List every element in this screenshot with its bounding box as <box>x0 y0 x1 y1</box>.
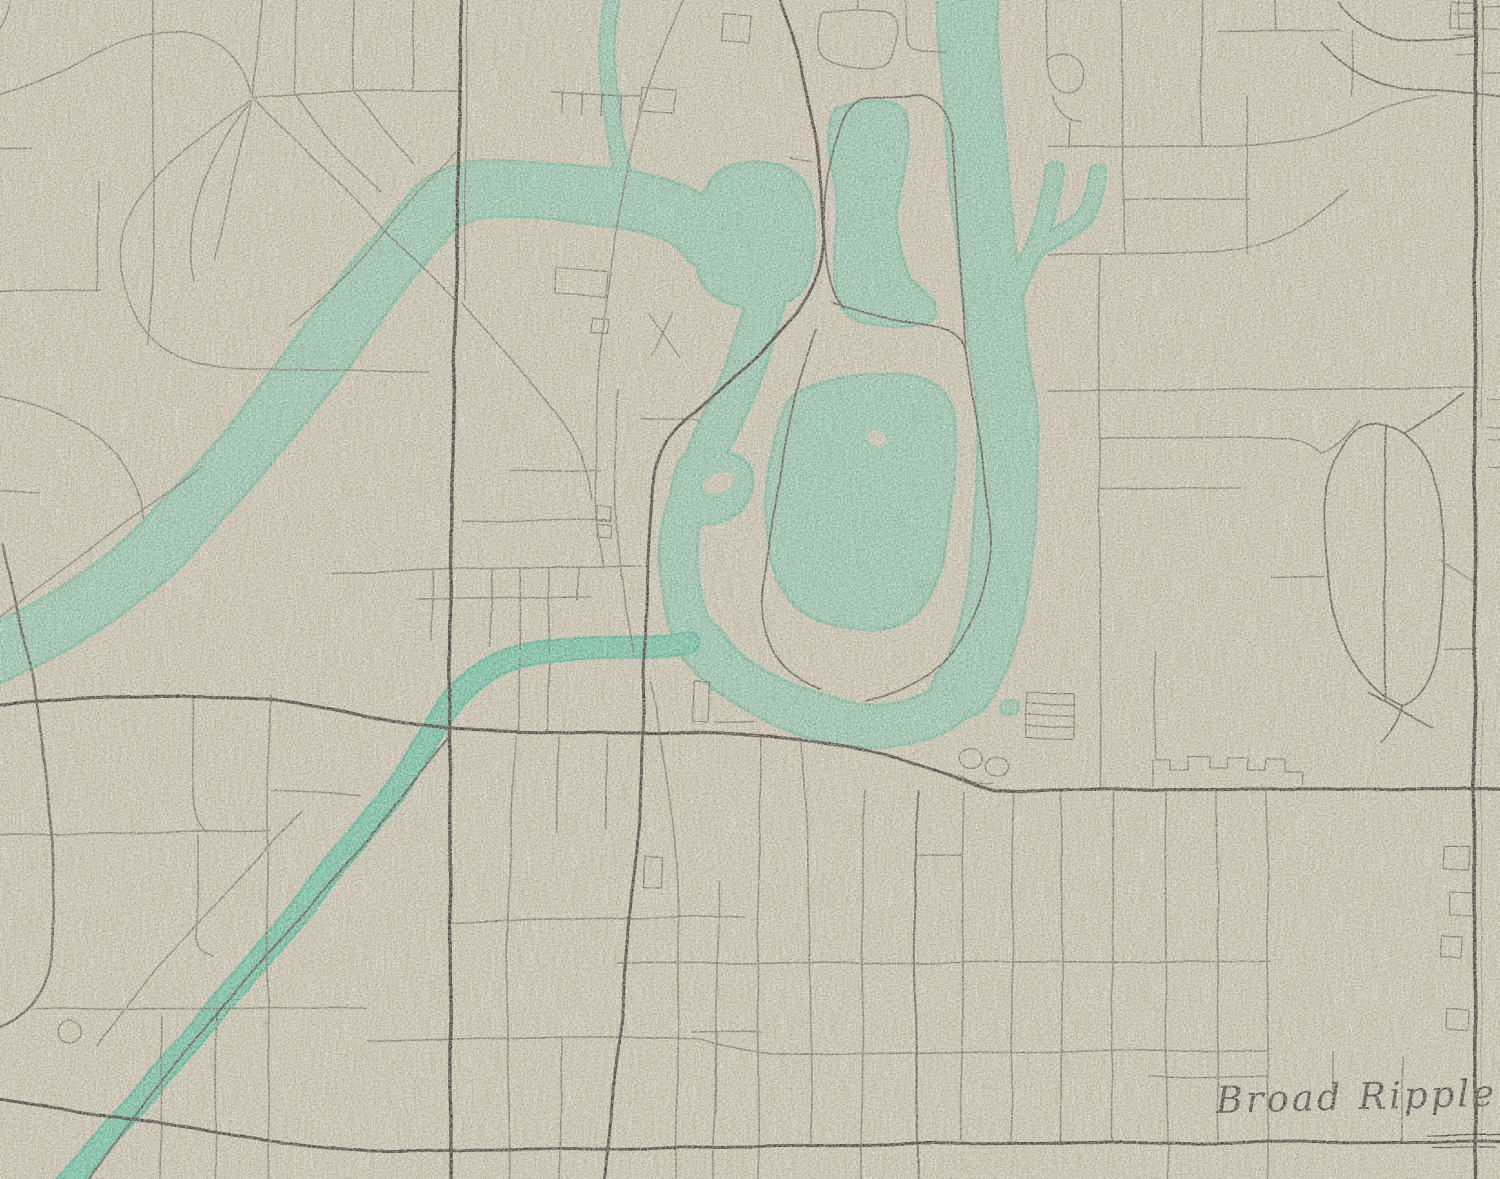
place-label-broad-ripple: Broad Ripple <box>1214 1072 1497 1122</box>
vintage-street-map: Broad Ripple <box>0 0 1500 1179</box>
railroad-east <box>1474 0 1476 1179</box>
map-svg: Broad Ripple <box>0 0 1500 1179</box>
